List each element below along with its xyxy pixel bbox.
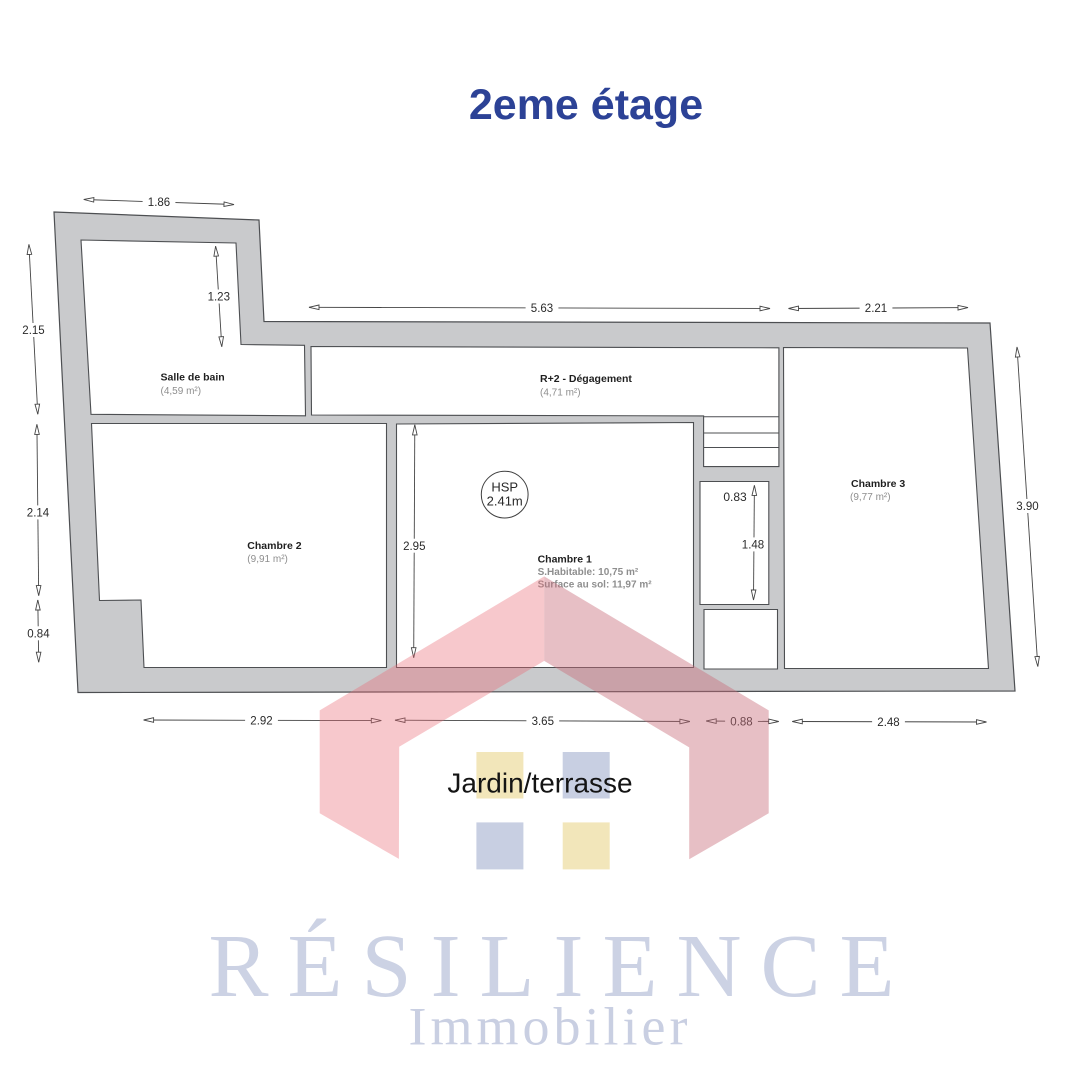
svg-text:2.15: 2.15: [22, 325, 44, 337]
svg-text:1.86: 1.86: [148, 197, 170, 209]
svg-text:Immobilier: Immobilier: [409, 997, 692, 1057]
svg-text:R+2 - Dégagement: R+2 - Dégagement: [540, 373, 632, 385]
svg-text:2.48: 2.48: [877, 717, 899, 729]
svg-text:2.95: 2.95: [403, 541, 425, 553]
svg-text:2.41m: 2.41m: [487, 494, 523, 509]
svg-text:S.Habitable: 10,75 m²: S.Habitable: 10,75 m²: [538, 567, 639, 578]
svg-text:3.90: 3.90: [1016, 501, 1038, 513]
svg-text:(9,91 m²): (9,91 m²): [247, 554, 288, 565]
svg-text:HSP: HSP: [491, 480, 518, 495]
svg-text:2.92: 2.92: [250, 716, 272, 728]
svg-text:(4,59 m²): (4,59 m²): [161, 386, 202, 397]
svg-text:0.84: 0.84: [27, 629, 50, 641]
svg-text:Chambre 2: Chambre 2: [247, 540, 301, 552]
svg-text:1.23: 1.23: [208, 292, 230, 304]
svg-text:2eme étage: 2eme étage: [469, 81, 703, 129]
svg-text:Chambre 1: Chambre 1: [538, 554, 592, 566]
svg-text:Chambre 3: Chambre 3: [851, 478, 905, 490]
svg-text:3.65: 3.65: [532, 716, 554, 728]
svg-text:2.21: 2.21: [865, 303, 887, 315]
svg-text:1.48: 1.48: [742, 540, 764, 552]
svg-text:(4,71 m²): (4,71 m²): [540, 388, 581, 399]
svg-text:Jardin/terrasse: Jardin/terrasse: [447, 768, 632, 799]
svg-text:(9,77 m²): (9,77 m²): [850, 492, 891, 503]
svg-text:5.63: 5.63: [531, 303, 553, 315]
svg-text:Salle de bain: Salle de bain: [161, 371, 225, 383]
svg-text:0.83: 0.83: [723, 490, 747, 504]
svg-text:2.14: 2.14: [27, 508, 50, 520]
